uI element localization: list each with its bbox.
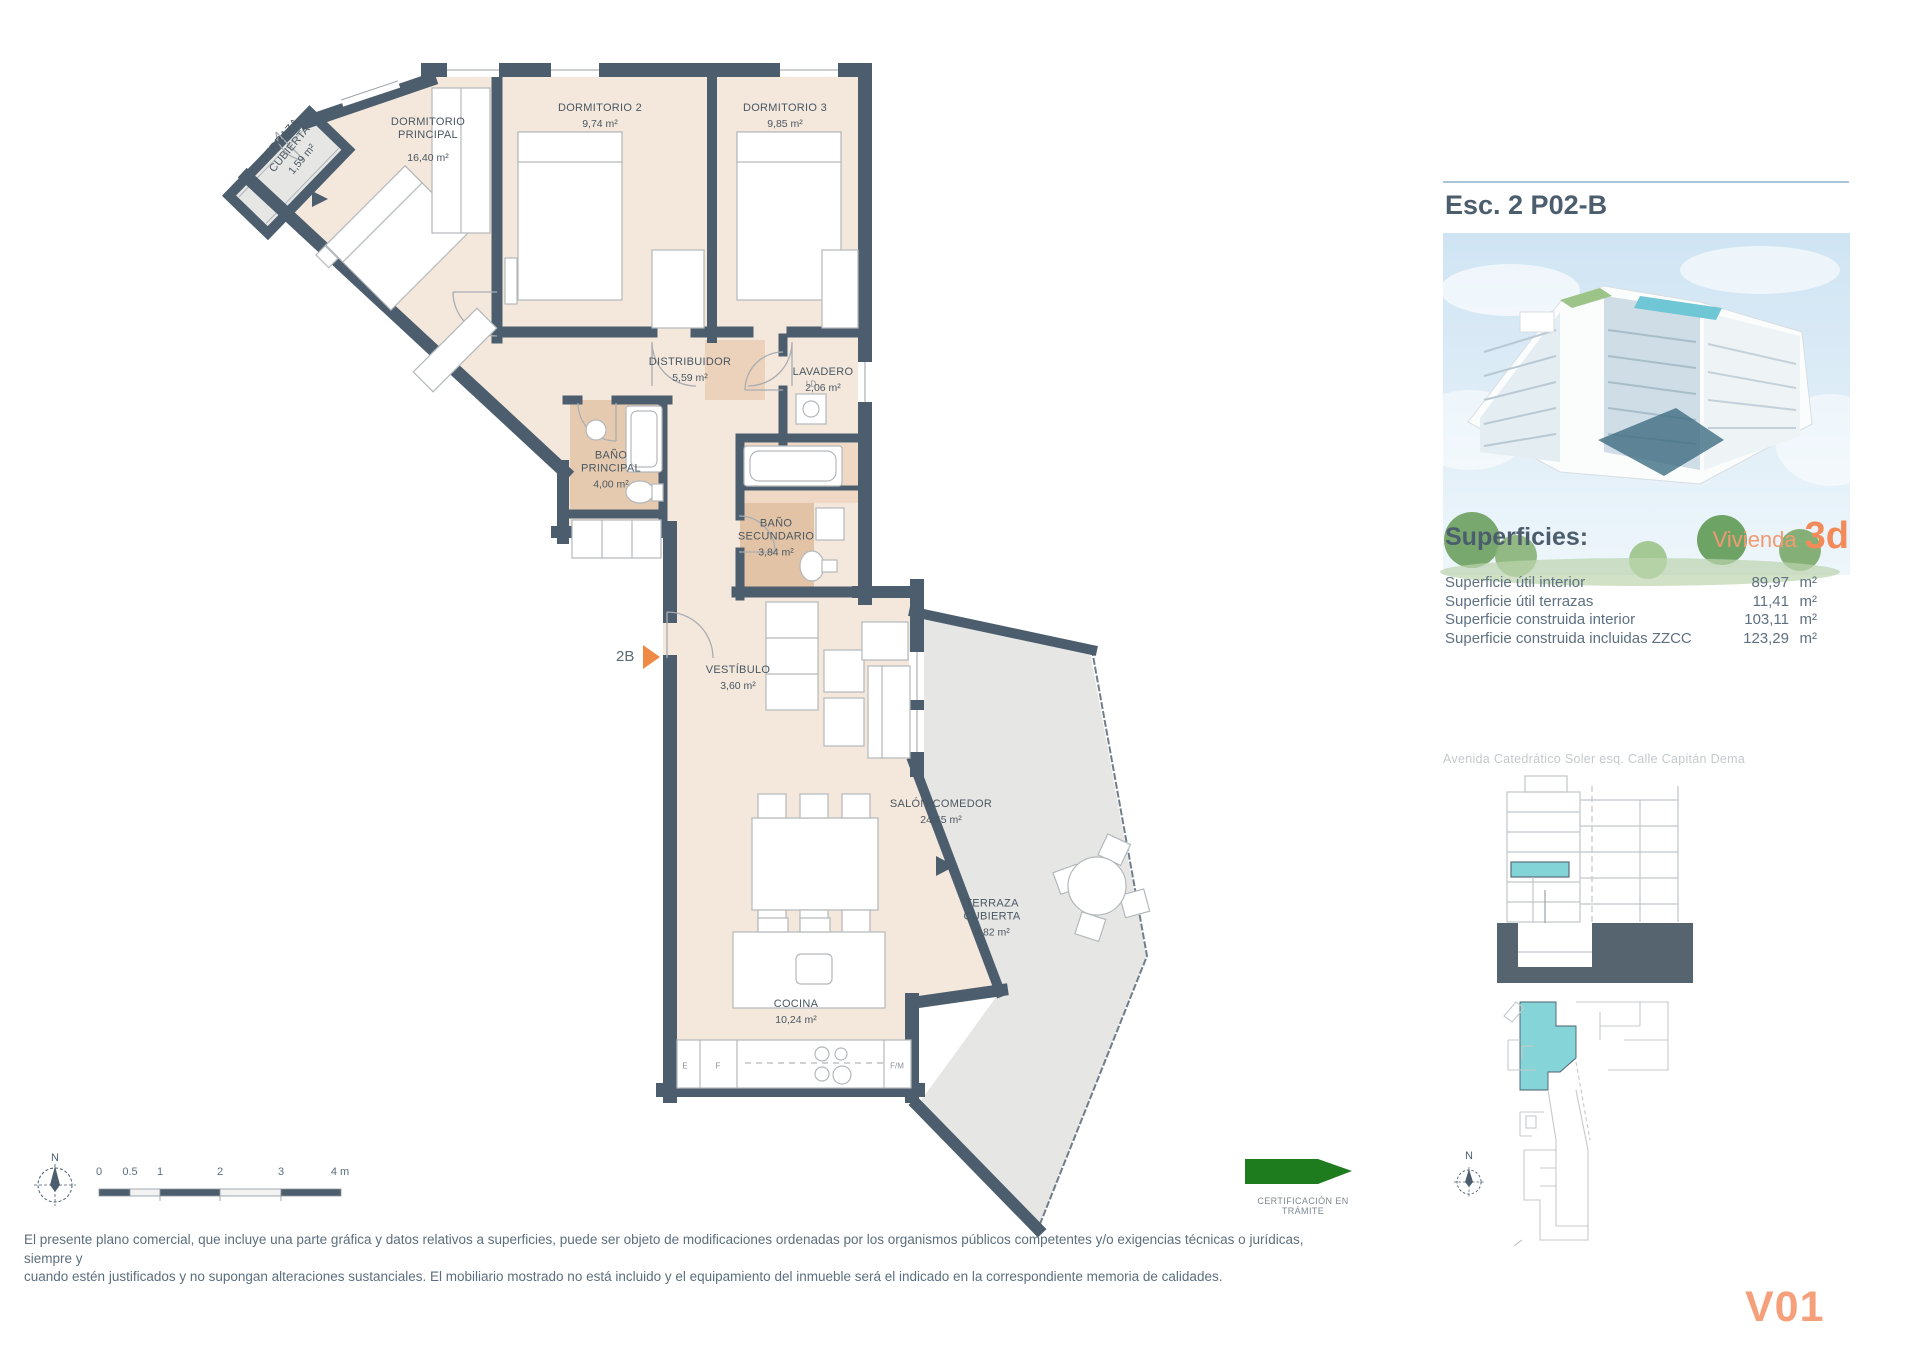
superficie-unit: m² [1789, 593, 1817, 612]
entrance-code: 2B [616, 648, 634, 665]
address-caption: Avenida Catedrático Soler esq. Calle Cap… [1443, 752, 1849, 766]
version-code: V01 [1745, 1283, 1850, 1332]
superficie-label: Superficie construida interior [1445, 611, 1737, 630]
north-compass-small [1454, 1167, 1484, 1197]
plan-sheet: TERRAZA CUBIERTA1,59 m²DORMITORIO PRINCI… [0, 0, 1920, 1357]
entrance-arrow-icon [643, 645, 660, 669]
wardrobe-d2 [652, 250, 704, 328]
plan-code-title: Esc. 2 P02-B [1445, 190, 1607, 221]
scale-tick-label: 2 [217, 1166, 223, 1178]
kitchen-island [733, 918, 885, 1008]
superficie-value: 11,41 [1737, 593, 1789, 612]
wardrobe-d3 [822, 250, 858, 328]
north-compass-main [34, 1164, 76, 1206]
sink-principal [586, 420, 606, 440]
certification-arrow-icon [1245, 1159, 1352, 1184]
superficies-heading: Superficies: [1445, 523, 1588, 552]
key-plan [1504, 1002, 1668, 1246]
superficie-value: 123,29 [1737, 630, 1789, 649]
superficie-unit: m² [1789, 630, 1817, 649]
superficie-label: Superficie útil interior [1445, 574, 1737, 593]
scale-tick-label: 0.5 [122, 1166, 137, 1178]
appliance-label-ld: LD [806, 380, 816, 389]
scale-tick-label: 3 [278, 1166, 284, 1178]
superficie-label: Superficie construida incluidas ZZCC [1445, 630, 1737, 649]
appliance-label-fm: F/M [890, 1062, 904, 1071]
kitchen-counter [677, 1040, 911, 1088]
hall-closet [572, 520, 661, 558]
superficies-row: Superficie útil interior89,97m² [1445, 574, 1817, 593]
north-letter-main: N [51, 1152, 59, 1164]
vestibule-wardrobe [766, 602, 818, 710]
vivienda-code: 3d [1805, 520, 1849, 552]
superficie-value: 103,11 [1737, 611, 1789, 630]
superficies-header: Superficies: Vivienda 3d [1445, 520, 1849, 552]
floor-plan-canvas [0, 0, 1920, 1357]
north-letter-small: N [1465, 1150, 1473, 1162]
dining-set [752, 794, 878, 934]
scale-tick-label: 0 [96, 1166, 102, 1178]
legal-line-2: cuando estén justificados y no supongan … [24, 1268, 1354, 1287]
scale-tick-label: 4 m [331, 1166, 349, 1178]
appliance-label-e: E [682, 1062, 687, 1071]
sink-secundario [816, 508, 844, 540]
superficies-row: Superficie construida incluidas ZZCC123,… [1445, 630, 1817, 649]
sofa [868, 666, 910, 758]
superficies-table: Superficie útil interior89,97m²Superfici… [1445, 574, 1817, 648]
superficie-unit: m² [1789, 611, 1817, 630]
superficie-unit: m² [1789, 574, 1817, 593]
bathtub-secundario [744, 446, 842, 486]
panel-divider [1443, 181, 1849, 183]
toilet-principal [626, 481, 654, 503]
superficies-row: Superficie útil terrazas11,41m² [1445, 593, 1817, 612]
scale-tick-label: 1 [157, 1166, 163, 1178]
vivienda-label: Vivienda [1713, 528, 1797, 552]
toilet-secundario [800, 551, 824, 581]
appliance-label-f: F [716, 1062, 721, 1071]
superficies-row: Superficie construida interior103,11m² [1445, 611, 1817, 630]
scale-bar [99, 1189, 341, 1201]
superficie-value: 89,97 [1737, 574, 1789, 593]
legal-line-1: El presente plano comercial, que incluye… [24, 1231, 1354, 1268]
washer [796, 394, 826, 424]
certification-label: CERTIFICACIÓN EN TRÁMITE [1238, 1196, 1368, 1216]
section-diagram [1497, 776, 1693, 983]
legal-text: El presente plano comercial, que incluye… [24, 1231, 1354, 1287]
superficie-label: Superficie útil terrazas [1445, 593, 1737, 612]
